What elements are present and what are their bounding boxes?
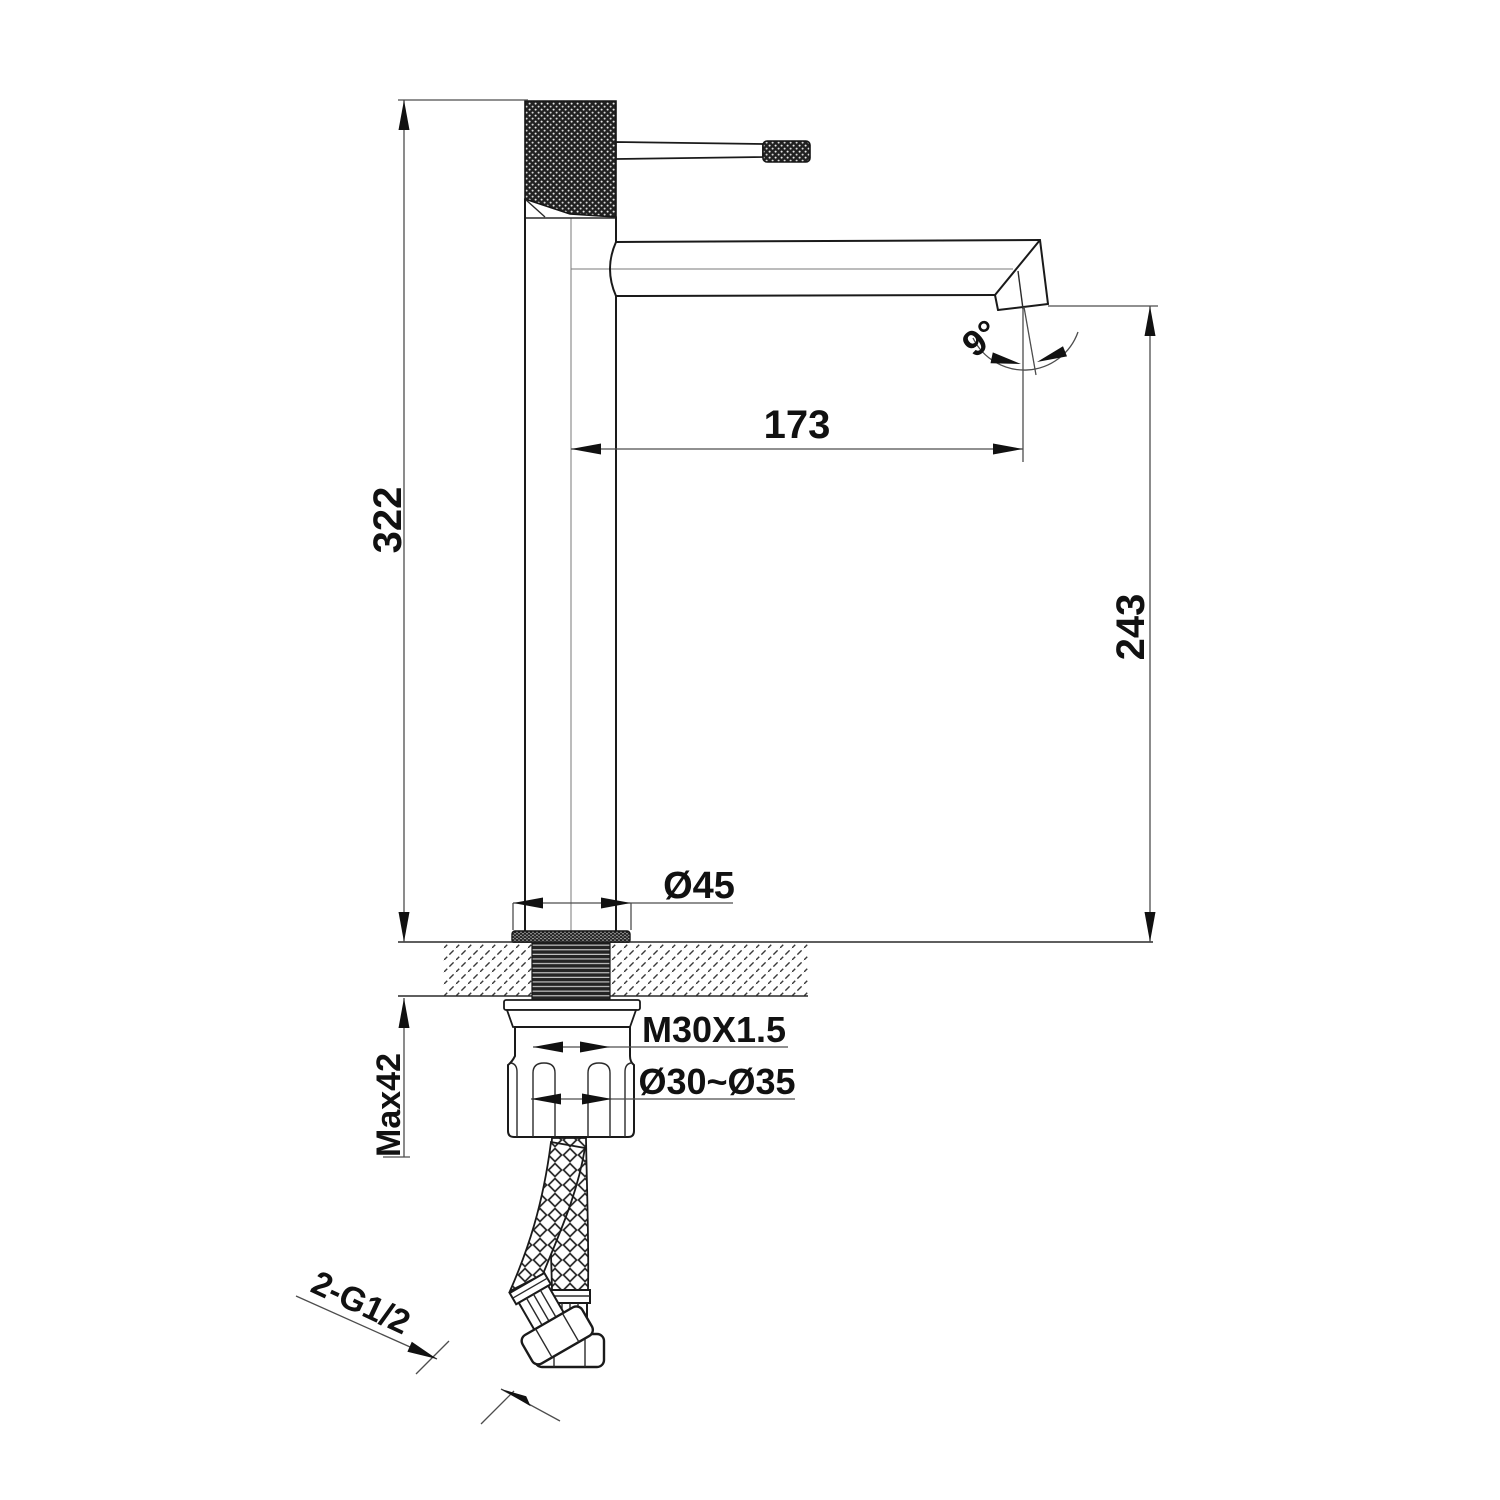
technical-drawing-page: 322 173 243 9° Ø45 M30X1.5 — [0, 0, 1500, 1500]
dim-base-diameter: Ø45 — [513, 865, 735, 930]
dim-outlet-angle: 9° — [954, 307, 1078, 375]
spout-arm — [610, 240, 1048, 310]
dim-hole-diameter-label: Ø30~Ø35 — [638, 1061, 795, 1102]
faucet-dimension-drawing: 322 173 243 9° Ø45 M30X1.5 — [0, 0, 1500, 1500]
centerlines — [571, 218, 1013, 1026]
dim-spout-reach-label: 173 — [764, 403, 831, 447]
collar — [507, 1010, 636, 1027]
dim-overall-height-label: 322 — [366, 487, 410, 554]
deck-hatch-left — [443, 943, 532, 996]
mounting-deck — [398, 942, 1153, 996]
lever-grip — [763, 141, 810, 162]
dim-base-diameter-label: Ø45 — [663, 865, 735, 907]
spout-tip — [995, 240, 1048, 310]
washer — [504, 1000, 640, 1010]
dim-hose-connection-label: 2-G1/2 — [306, 1264, 416, 1342]
dim-max-thickness: Max42 — [370, 998, 410, 1157]
faucet-body — [512, 101, 1048, 1026]
base-flange — [512, 931, 630, 943]
deck-hatch-right — [610, 943, 808, 996]
handle-knob — [525, 101, 616, 218]
dim-overall-height: 322 — [366, 100, 528, 942]
dim-thread-spec-label: M30X1.5 — [642, 1009, 786, 1050]
mounting-nut — [508, 1027, 634, 1137]
dim-outlet-height: 243 — [1048, 306, 1158, 942]
handle-lever — [616, 141, 810, 162]
threaded-shank — [532, 943, 610, 1000]
dim-outlet-height-label: 243 — [1109, 594, 1153, 661]
supply-hoses — [497, 1138, 604, 1367]
dim-max-thickness-label: Max42 — [370, 1053, 408, 1157]
